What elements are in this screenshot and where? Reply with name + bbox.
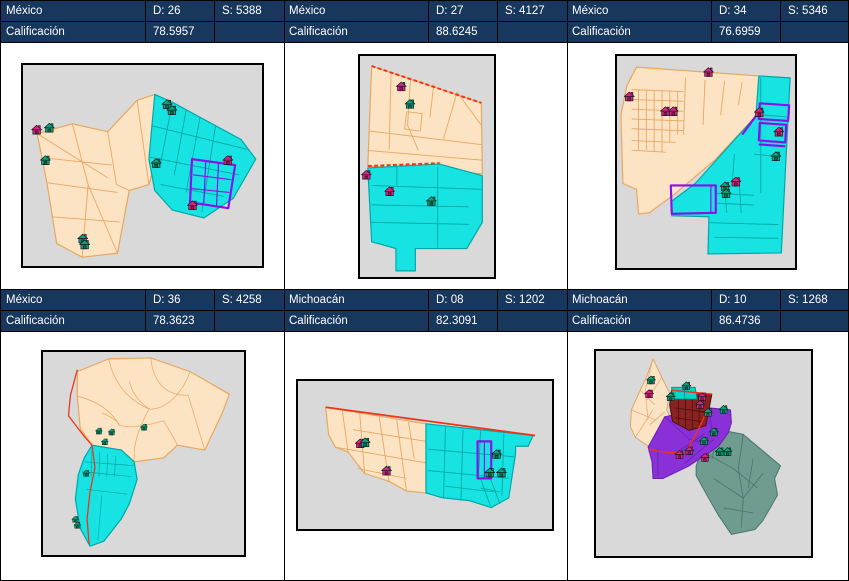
empty-cell: [498, 22, 567, 42]
section-map: [360, 56, 494, 277]
section-value: S: 5346: [781, 1, 849, 21]
panel-mexico-d34: México D: 34 S: 5346 Calificación 76.695…: [567, 1, 849, 289]
empty-cell: [498, 311, 567, 331]
panel-mexico-d26: México D: 26 S: 5388 Calificación 78.595…: [1, 1, 284, 289]
map-frame: [41, 350, 246, 557]
score-value: 78.3623: [146, 311, 215, 331]
house-icon-teal: [44, 123, 54, 132]
empty-cell: [215, 22, 284, 42]
district-value: D: 10: [712, 290, 781, 310]
panel-mexico-d36: México D: 36 S: 4258 Calificación 78.362…: [1, 290, 284, 581]
section-value: S: 4127: [498, 1, 567, 21]
state-name: México: [1, 290, 146, 310]
map-frame: [594, 349, 813, 558]
district-value: D: 36: [146, 290, 215, 310]
panel-michoacan-d08: Michoacán D: 08 S: 1202 Calificación 82.…: [284, 290, 567, 581]
panel-header: México D: 36 S: 4258 Calificación 78.362…: [1, 290, 284, 332]
district-value: D: 27: [429, 1, 498, 21]
section-value: S: 5388: [215, 1, 284, 21]
state-name: Michoacán: [284, 290, 429, 310]
score-value: 78.5957: [146, 22, 215, 42]
state-name: México: [567, 1, 712, 21]
section-value: S: 1268: [781, 290, 849, 310]
map-frame: [296, 379, 554, 531]
panel-header: Michoacán D: 08 S: 1202 Calificación 82.…: [284, 290, 567, 332]
house-icon-magenta: [32, 125, 42, 134]
map-frame: [358, 54, 496, 279]
state-name: México: [284, 1, 429, 21]
score-value: 88.6245: [429, 22, 498, 42]
panel-divider-vertical: [284, 1, 285, 580]
score-value: 76.6959: [712, 22, 781, 42]
section-value: S: 1202: [498, 290, 567, 310]
report-grid: México D: 26 S: 5388 Calificación 78.595…: [0, 0, 849, 581]
section-map: [596, 351, 811, 556]
section-map: [43, 352, 244, 555]
panel-header: Michoacán D: 10 S: 1268 Calificación 86.…: [567, 290, 849, 332]
panel-header: México D: 34 S: 5346 Calificación 76.695…: [567, 1, 849, 43]
district-value: D: 08: [429, 290, 498, 310]
map-frame: [615, 54, 797, 270]
house-icon-teal: [682, 382, 691, 390]
score-value: 82.3091: [429, 311, 498, 331]
house-icon-magenta: [361, 170, 371, 179]
score-label: Calificación: [284, 22, 429, 42]
score-value: 86.4736: [712, 311, 781, 331]
panel-michoacan-d10: Michoacán D: 10 S: 1268 Calificación 86.…: [567, 290, 849, 581]
panel-mexico-d27: México D: 27 S: 4127 Calificación 88.624…: [284, 1, 567, 289]
panel-divider-horizontal: [1, 289, 848, 290]
house-icon-magenta: [703, 68, 713, 77]
section-map: [617, 56, 795, 268]
house-icon-teal: [72, 516, 79, 522]
map-frame: [21, 63, 264, 268]
state-name: México: [1, 1, 146, 21]
score-label: Calificación: [1, 22, 146, 42]
panel-header: México D: 27 S: 4127 Calificación 88.624…: [284, 1, 567, 43]
section-value: S: 4258: [215, 290, 284, 310]
empty-cell: [215, 311, 284, 331]
empty-cell: [781, 311, 849, 331]
score-label: Calificación: [567, 311, 712, 331]
score-label: Calificación: [284, 311, 429, 331]
empty-cell: [781, 22, 849, 42]
section-map: [298, 381, 552, 529]
score-label: Calificación: [1, 311, 146, 331]
score-label: Calificación: [567, 22, 712, 42]
house-icon-teal: [719, 405, 728, 413]
section-map: [23, 65, 262, 266]
district-value: D: 34: [712, 1, 781, 21]
panel-divider-vertical: [567, 1, 568, 580]
house-icon-teal: [74, 522, 81, 528]
panel-header: México D: 26 S: 5388 Calificación 78.595…: [1, 1, 284, 43]
state-name: Michoacán: [567, 290, 712, 310]
district-value: D: 26: [146, 1, 215, 21]
